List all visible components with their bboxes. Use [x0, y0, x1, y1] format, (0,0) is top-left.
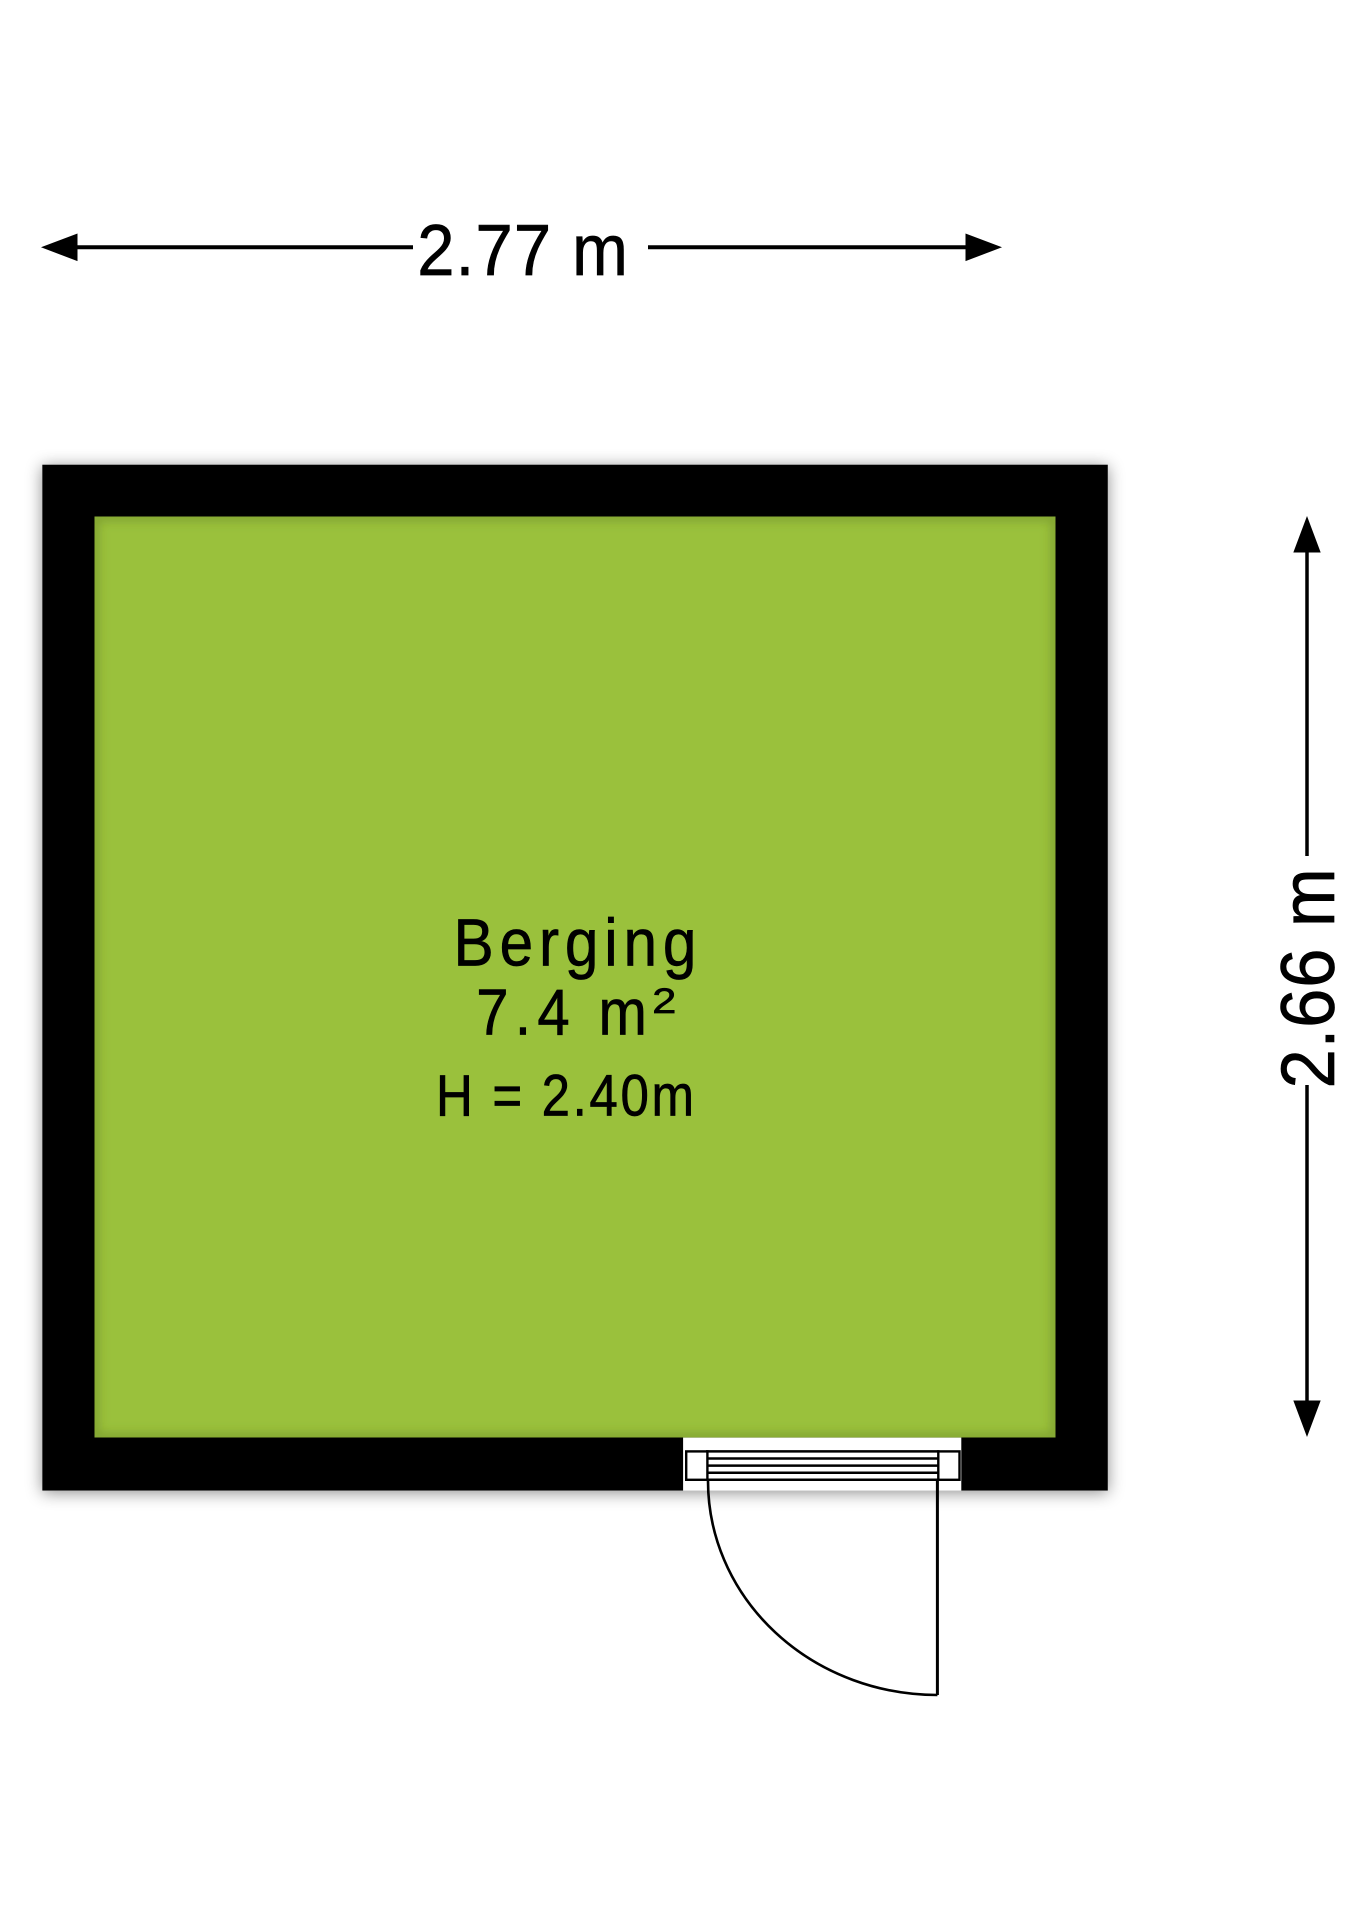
- svg-text:2: 2: [652, 982, 676, 1021]
- svg-text:H = 2.40m: H = 2.40m: [436, 1064, 697, 1129]
- svg-text:7.4 m: 7.4 m: [476, 977, 653, 1050]
- svg-text:2.77 m: 2.77 m: [417, 210, 629, 291]
- svg-text:Berging: Berging: [454, 905, 703, 981]
- svg-text:2.66 m: 2.66 m: [1265, 867, 1350, 1088]
